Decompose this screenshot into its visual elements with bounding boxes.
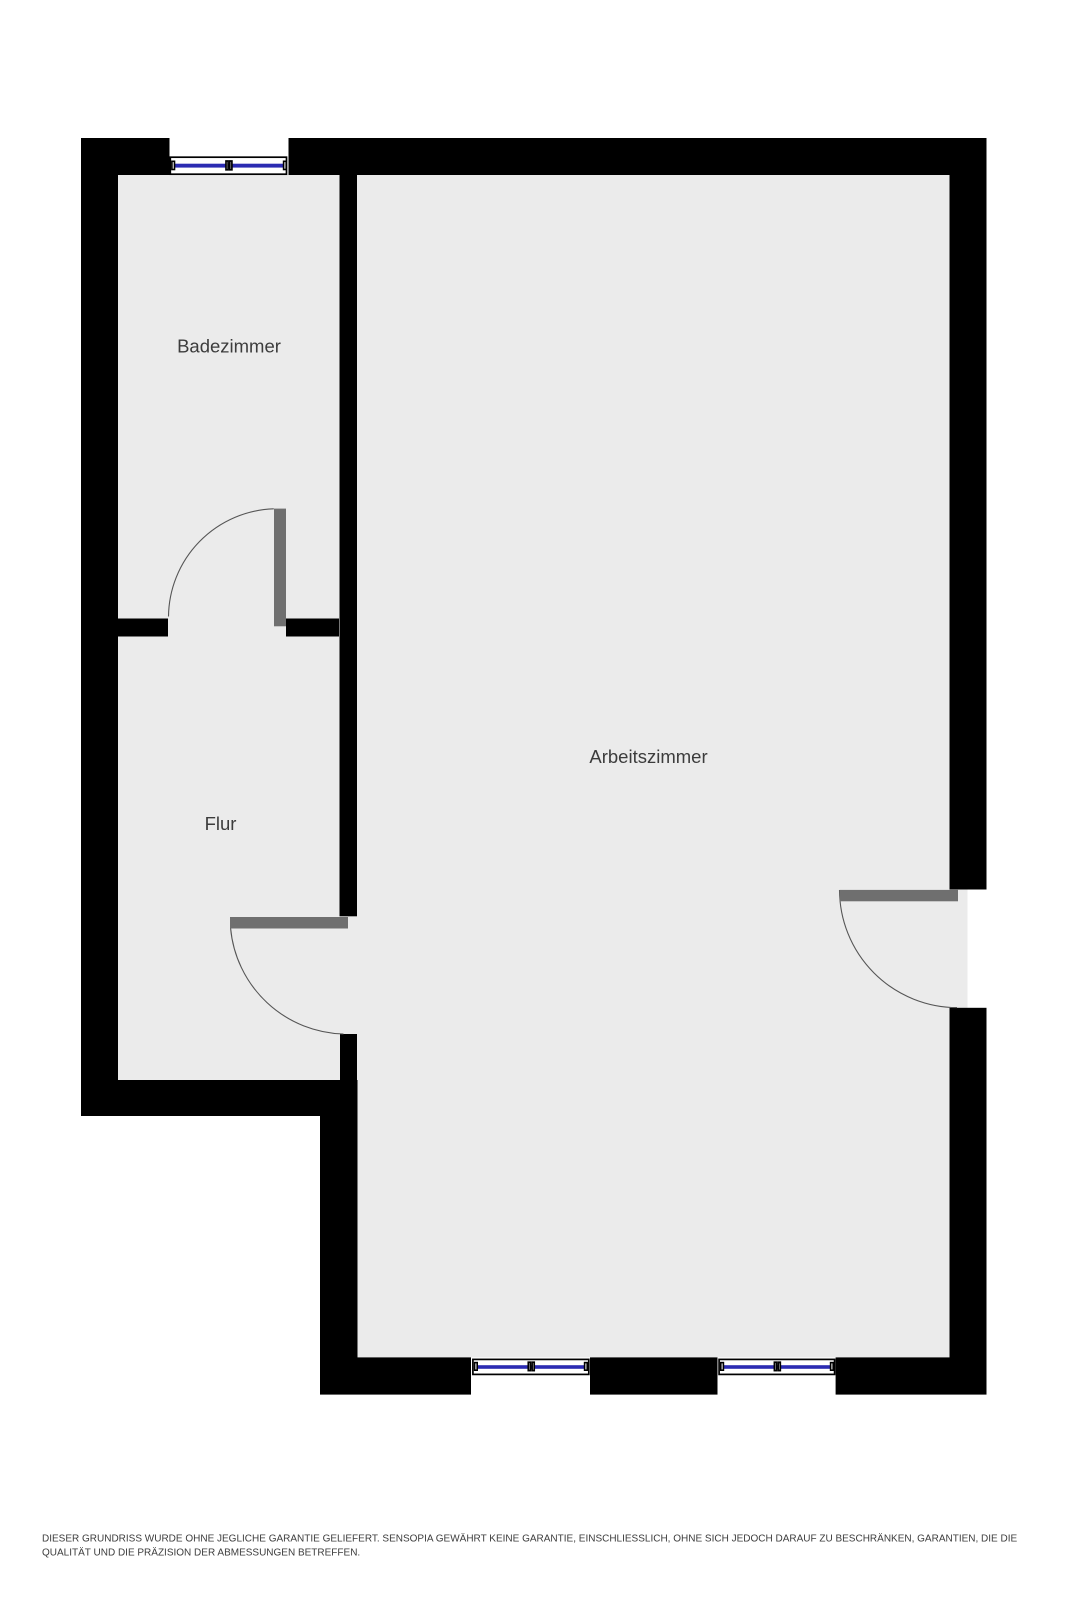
svg-text:QUALITÄT UND DIE PRÄZISION DER: QUALITÄT UND DIE PRÄZISION DER ABMESSUNG… bbox=[42, 1547, 360, 1559]
svg-text:DIESER GRUNDRISS WURDE OHNE JE: DIESER GRUNDRISS WURDE OHNE JEGLICHE GAR… bbox=[42, 1533, 1018, 1545]
svg-text:Flur: Flur bbox=[205, 813, 237, 834]
svg-text:Arbeitszimmer: Arbeitszimmer bbox=[589, 746, 707, 767]
svg-text:Badezimmer: Badezimmer bbox=[177, 336, 281, 357]
